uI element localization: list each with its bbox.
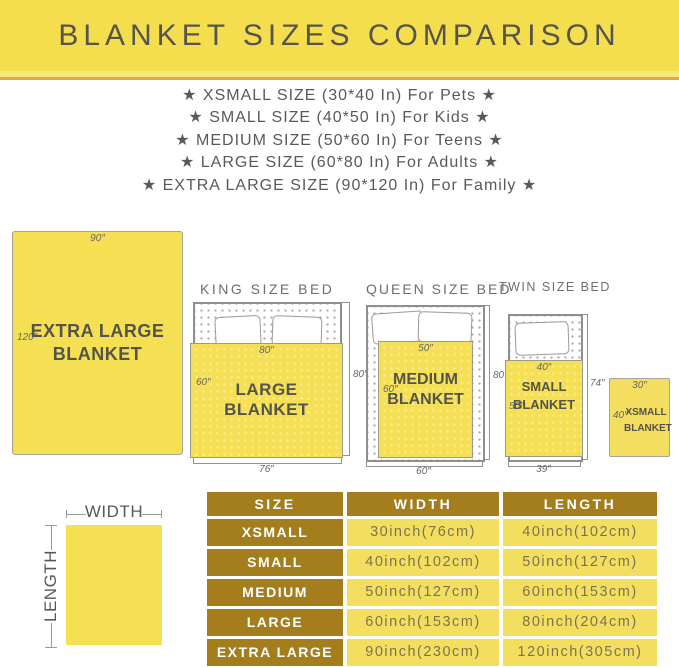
list-item-xsmall: ★ XSMALL SIZE (30*40 In) For Pets ★ xyxy=(0,85,679,107)
queen-pillow-left xyxy=(371,310,425,345)
list-item-extra-large: ★ EXTRA LARGE SIZE (90*120 In) For Famil… xyxy=(0,175,679,197)
banner-accent-line xyxy=(0,77,679,80)
medium-blanket-width-dim: 50″ xyxy=(379,343,472,354)
table-cell-length: 50inch(127cm) xyxy=(503,549,657,576)
length-dim-tick-top xyxy=(45,525,57,526)
page-title: BLANKET SIZES COMPARISON xyxy=(0,0,679,71)
large-blanket-label: LARGE BLANKET xyxy=(191,380,342,420)
small-blanket-label: SMALL BLANKET xyxy=(506,378,582,413)
table-cell-length: 120inch(305cm) xyxy=(503,639,657,666)
table-header-width: WIDTH xyxy=(347,492,499,516)
small-blanket-diagram: 40″ 50″ SMALL BLANKET xyxy=(505,360,583,457)
medium-blanket-label: MEDIUM BLANKET xyxy=(379,370,472,410)
medium-blanket-diagram: 50″ 60″ MEDIUM BLANKET xyxy=(378,341,473,458)
size-comparison-table: SIZE WIDTH LENGTH XSMALL 30inch(76cm) 40… xyxy=(207,492,657,666)
table-cell-length: 40inch(102cm) xyxy=(503,519,657,546)
table-cell-length: 60inch(153cm) xyxy=(503,579,657,606)
table-cell-length: 80inch(204cm) xyxy=(503,609,657,636)
table-cell-width: 60inch(153cm) xyxy=(347,609,499,636)
blanket-sizes-infographic: BLANKET SIZES COMPARISON ★ XSMALL SIZE (… xyxy=(0,0,679,667)
width-dim-tick-right xyxy=(161,510,162,518)
table-cell-width: 40inch(102cm) xyxy=(347,549,499,576)
list-item-medium: ★ MEDIUM SIZE (50*60 In) For Teens ★ xyxy=(0,130,679,152)
table-cell-size: SMALL xyxy=(207,549,343,576)
table-header-length: LENGTH xyxy=(503,492,657,516)
large-blanket-diagram: 80″ 60″ LARGE BLANKET xyxy=(190,343,343,458)
extra-large-blanket-diagram: 90″ 120″ EXTRA LARGE BLANKET xyxy=(12,231,183,455)
xl-blanket-label: EXTRA LARGE BLANKET xyxy=(13,320,182,367)
legend-width-label: WIDTH xyxy=(84,502,144,522)
legend-length-label: LENGTH xyxy=(41,550,61,622)
twin-bed-length-dim: 74″ xyxy=(590,378,605,389)
large-blanket-width-dim: 80″ xyxy=(191,345,342,356)
size-summary-list: ★ XSMALL SIZE (30*40 In) For Pets ★ ★ SM… xyxy=(0,85,679,197)
legend-blanket-swatch xyxy=(66,525,162,645)
width-dim-line-left xyxy=(66,514,86,515)
list-item-large: ★ LARGE SIZE (60*80 In) For Adults ★ xyxy=(0,152,679,174)
table-header-size: SIZE xyxy=(207,492,343,516)
table-cell-size: EXTRA LARGE xyxy=(207,639,343,666)
queen-pillow-right xyxy=(417,311,472,344)
xl-width-dim: 90″ xyxy=(13,233,182,244)
table-cell-width: 90inch(230cm) xyxy=(347,639,499,666)
header-banner: BLANKET SIZES COMPARISON xyxy=(0,0,679,71)
xsmall-width-dim: 30″ xyxy=(610,380,669,391)
xsmall-blanket-diagram: 30″ 40″ XSMALL BLANKET xyxy=(609,378,670,457)
width-dim-line-right xyxy=(142,514,162,515)
table-cell-width: 30inch(76cm) xyxy=(347,519,499,546)
twin-pillow xyxy=(514,321,569,356)
xsmall-blanket-label: XSMALL BLANKET xyxy=(624,405,668,436)
width-dim-tick-left xyxy=(66,510,67,518)
list-item-small: ★ SMALL SIZE (40*50 In) For Kids ★ xyxy=(0,107,679,129)
king-bed-width-dim: 76″ xyxy=(193,464,340,475)
table-cell-width: 50inch(127cm) xyxy=(347,579,499,606)
table-cell-size: XSMALL xyxy=(207,519,343,546)
twin-bed-width-dim: 39″ xyxy=(508,464,579,475)
small-blanket-width-dim: 40″ xyxy=(506,362,582,373)
table-cell-size: LARGE xyxy=(207,609,343,636)
length-dim-line-bottom xyxy=(51,623,52,648)
length-dim-line-top xyxy=(51,525,52,550)
king-bed-title: KING SIZE BED xyxy=(200,281,332,297)
twin-bed-title: TWIN SIZE BED xyxy=(499,280,595,294)
queen-bed-width-dim: 60″ xyxy=(366,466,481,477)
length-dim-tick-bottom xyxy=(45,647,57,648)
table-cell-size: MEDIUM xyxy=(207,579,343,606)
queen-bed-title: QUEEN SIZE BED xyxy=(366,281,482,297)
